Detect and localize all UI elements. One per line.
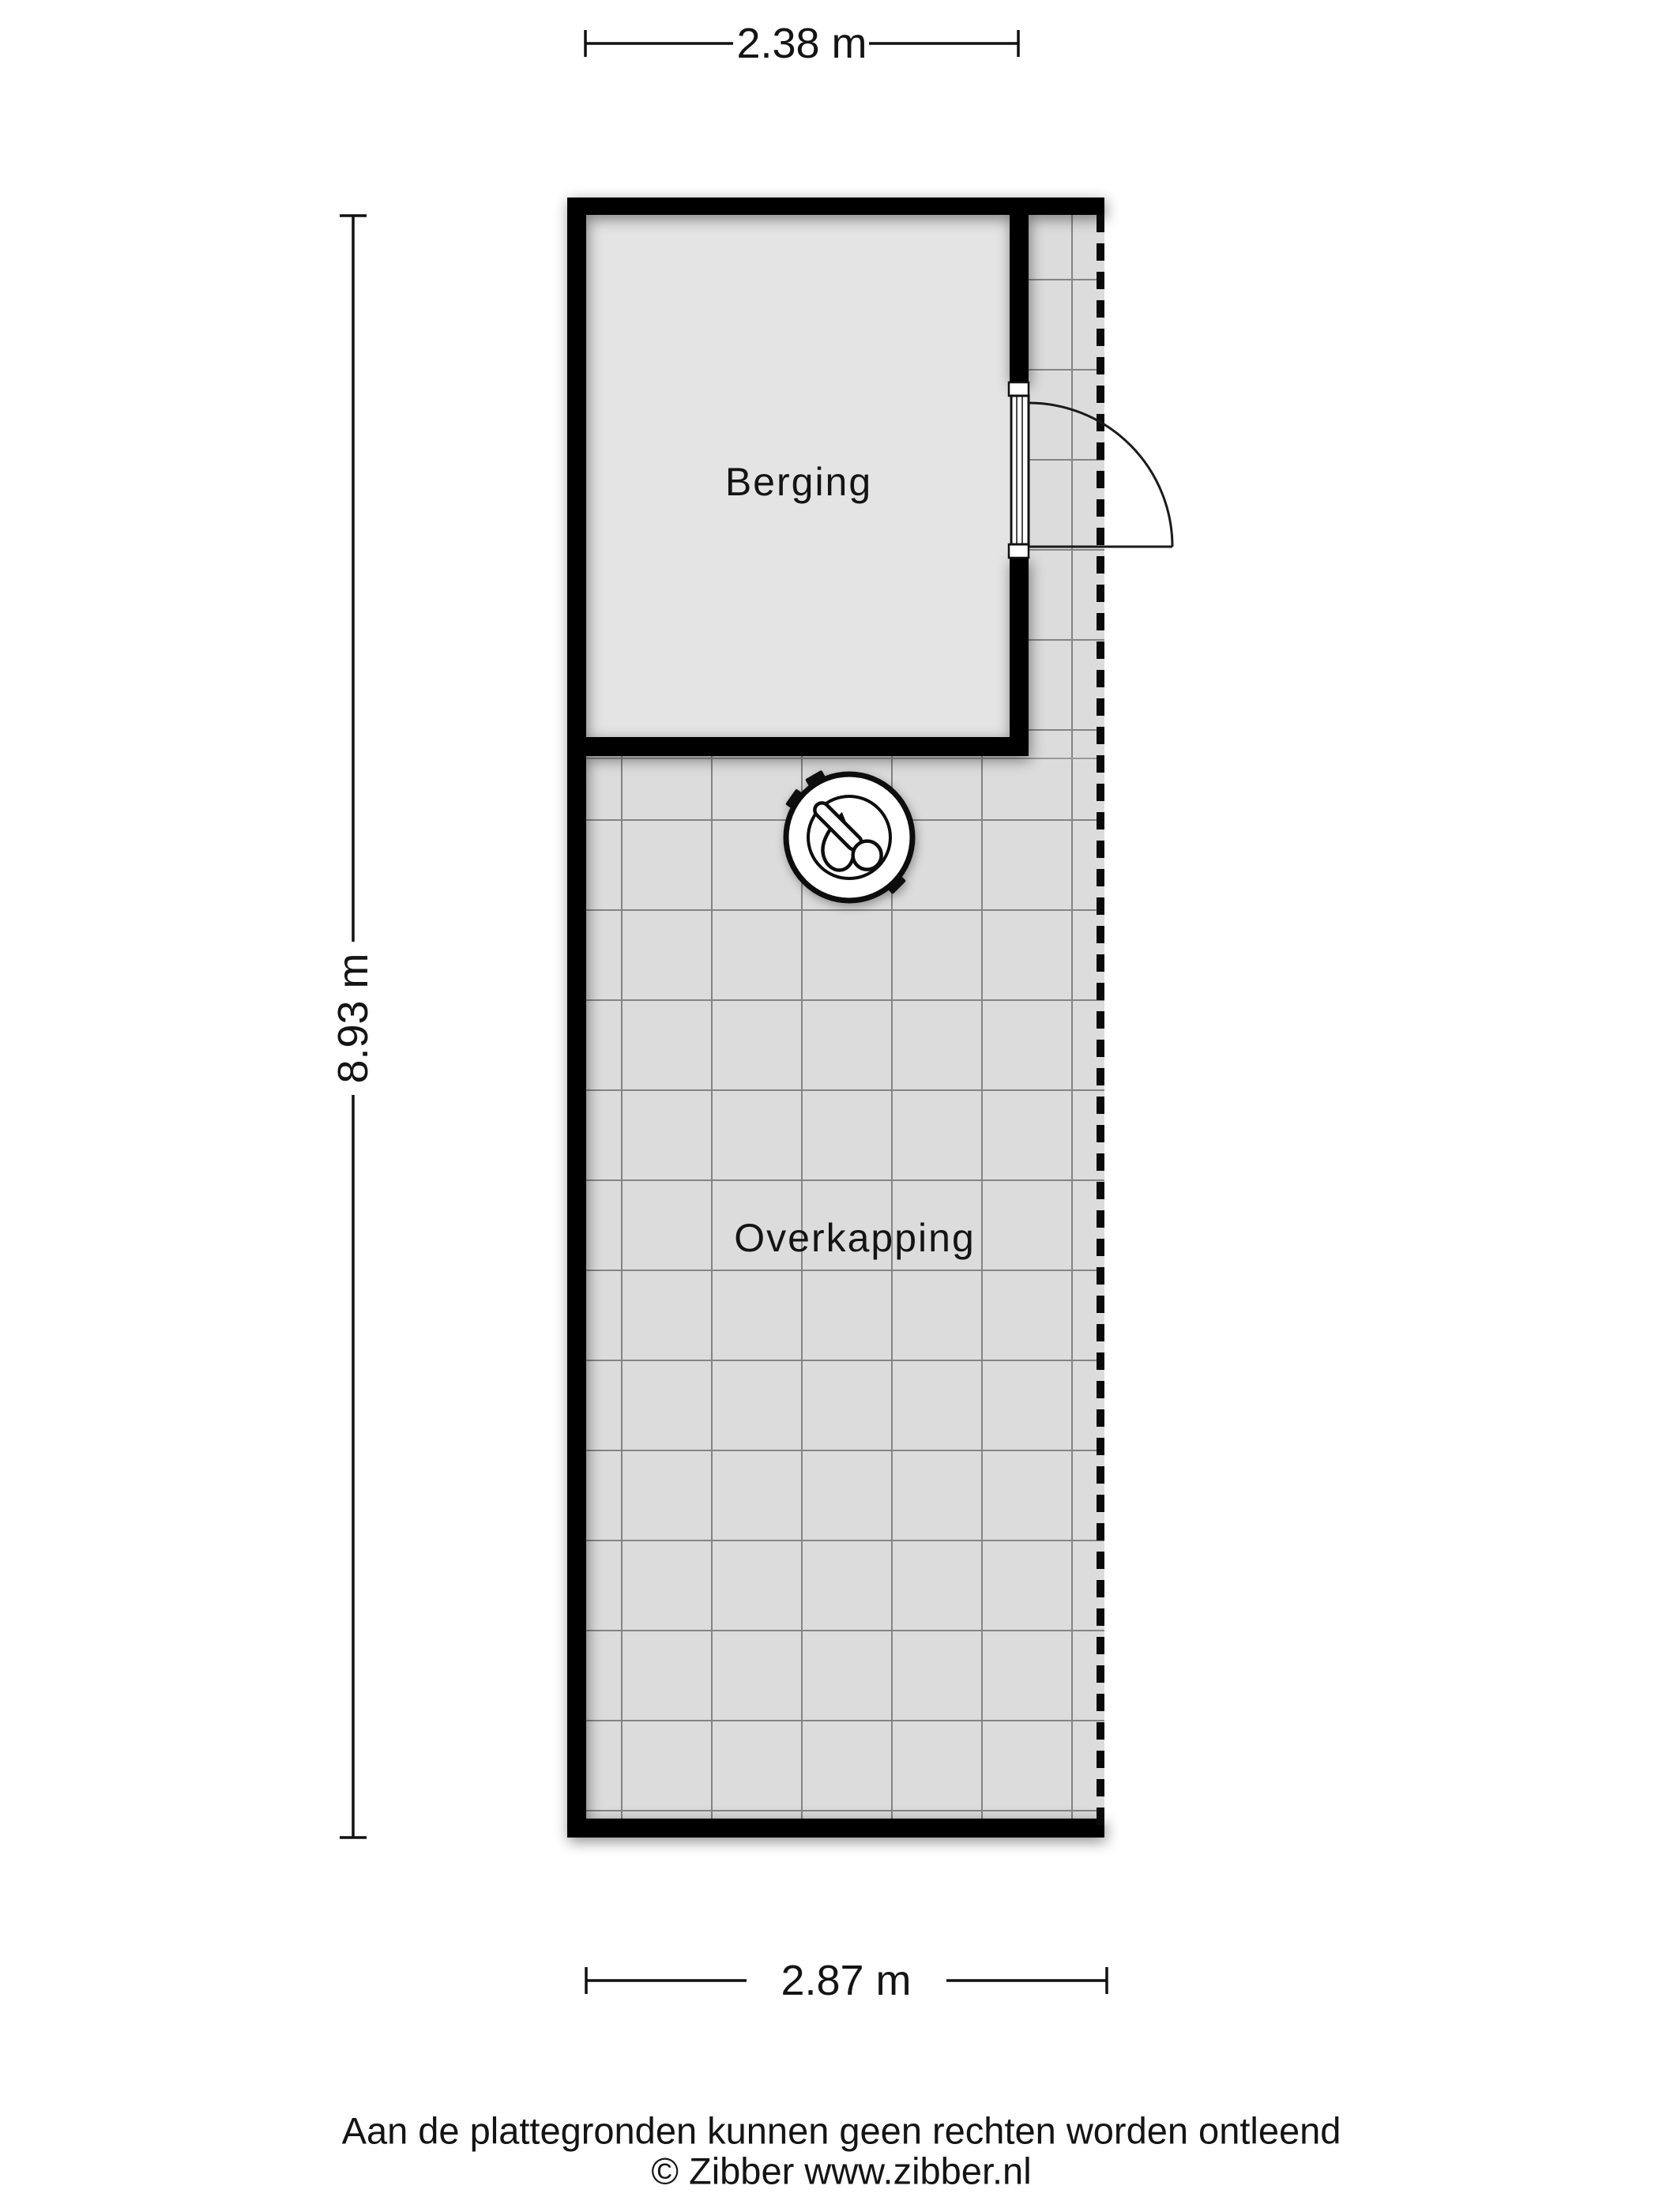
wall-bottom (567, 1819, 1104, 1838)
dimension-bottom-label: 2.87 m (781, 1957, 911, 2004)
wall-left (567, 197, 586, 1838)
footer-copyright: © Zibber www.zibber.nl (651, 2150, 1031, 2192)
dimension-top: 2.38 m (585, 20, 1018, 67)
overkapping-room-label: Overkapping (734, 1216, 976, 1260)
berging-room-label: Berging (725, 460, 872, 504)
dimension-left: 8.93 m (329, 216, 377, 1838)
dimension-top-label: 2.38 m (736, 20, 867, 67)
wall-berging-east-lower (1010, 558, 1029, 756)
boiler-thermometer-icon (785, 770, 912, 901)
floorplan-page: Berging Overkapping 2.38 m 8.93 m 2.87 m… (0, 0, 1659, 2212)
door-jamb-top (1009, 382, 1029, 396)
dimension-left-label: 8.93 m (329, 953, 377, 1083)
floorplan-canvas: Berging Overkapping 2.38 m 8.93 m 2.87 m… (0, 0, 1659, 2212)
dimension-bottom: 2.87 m (586, 1957, 1107, 2004)
wall-berging-south (567, 737, 1029, 756)
wall-berging-east-upper (1010, 197, 1029, 382)
footer-disclaimer: Aan de plattegronden kunnen geen rechten… (342, 2110, 1341, 2152)
door-jamb-bottom (1009, 544, 1029, 558)
door-leaf-closed (1011, 396, 1029, 544)
